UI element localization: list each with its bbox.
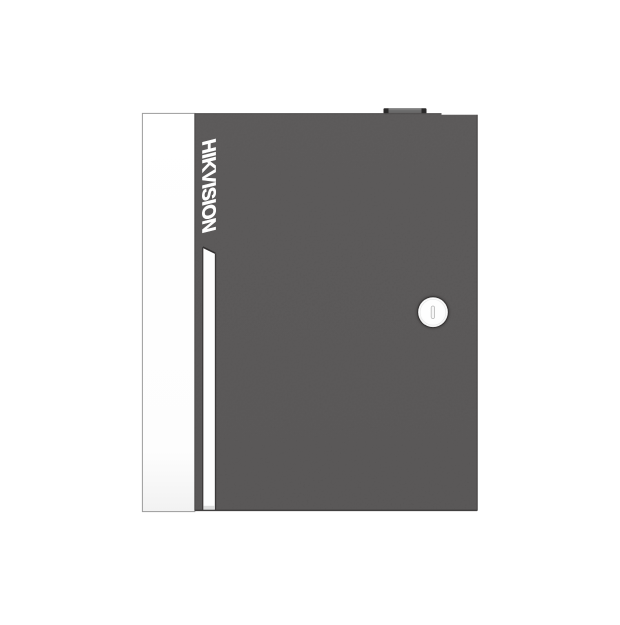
svg-text:HIKVISION: HIKVISION [198,137,219,235]
